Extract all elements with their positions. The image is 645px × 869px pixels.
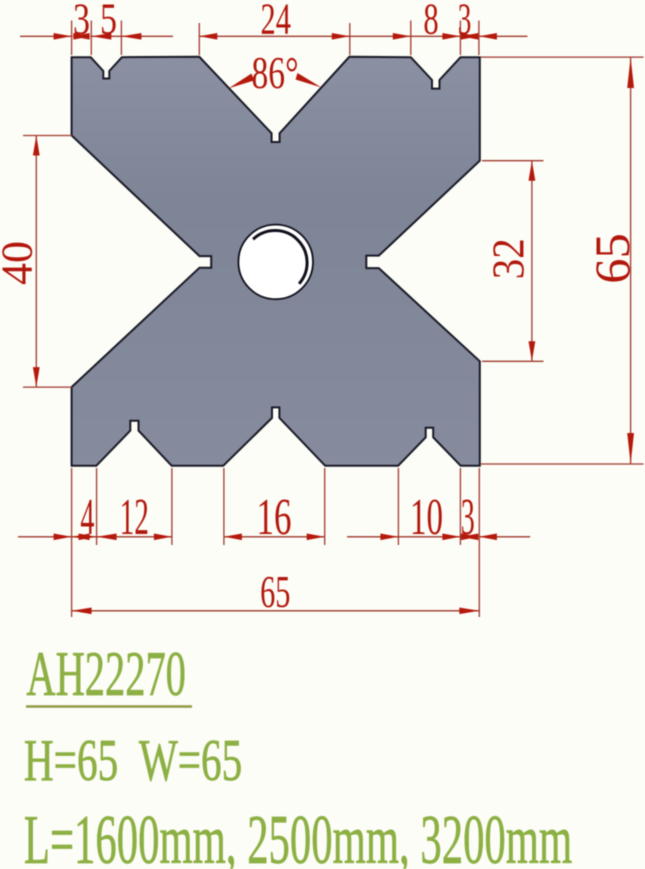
svg-text:3: 3 bbox=[73, 0, 90, 44]
svg-text:24: 24 bbox=[261, 0, 291, 44]
svg-text:H=65 W=65: H=65 W=65 bbox=[24, 727, 242, 793]
svg-text:65: 65 bbox=[260, 566, 290, 617]
svg-text:8: 8 bbox=[423, 0, 438, 44]
svg-text:AH22270: AH22270 bbox=[26, 639, 186, 709]
svg-text:3: 3 bbox=[461, 489, 475, 546]
svg-text:10: 10 bbox=[410, 489, 443, 546]
svg-text:65: 65 bbox=[584, 233, 640, 284]
svg-text:16: 16 bbox=[257, 489, 292, 546]
svg-text:4: 4 bbox=[80, 489, 94, 546]
svg-text:12: 12 bbox=[120, 489, 149, 546]
svg-text:3: 3 bbox=[458, 0, 472, 44]
svg-text:5: 5 bbox=[100, 0, 117, 44]
svg-text:40: 40 bbox=[0, 241, 42, 285]
svg-text:L=1600mm, 2500mm, 3200mm: L=1600mm, 2500mm, 3200mm bbox=[24, 802, 572, 869]
svg-text:86°: 86° bbox=[252, 47, 299, 98]
svg-text:32: 32 bbox=[484, 238, 534, 279]
